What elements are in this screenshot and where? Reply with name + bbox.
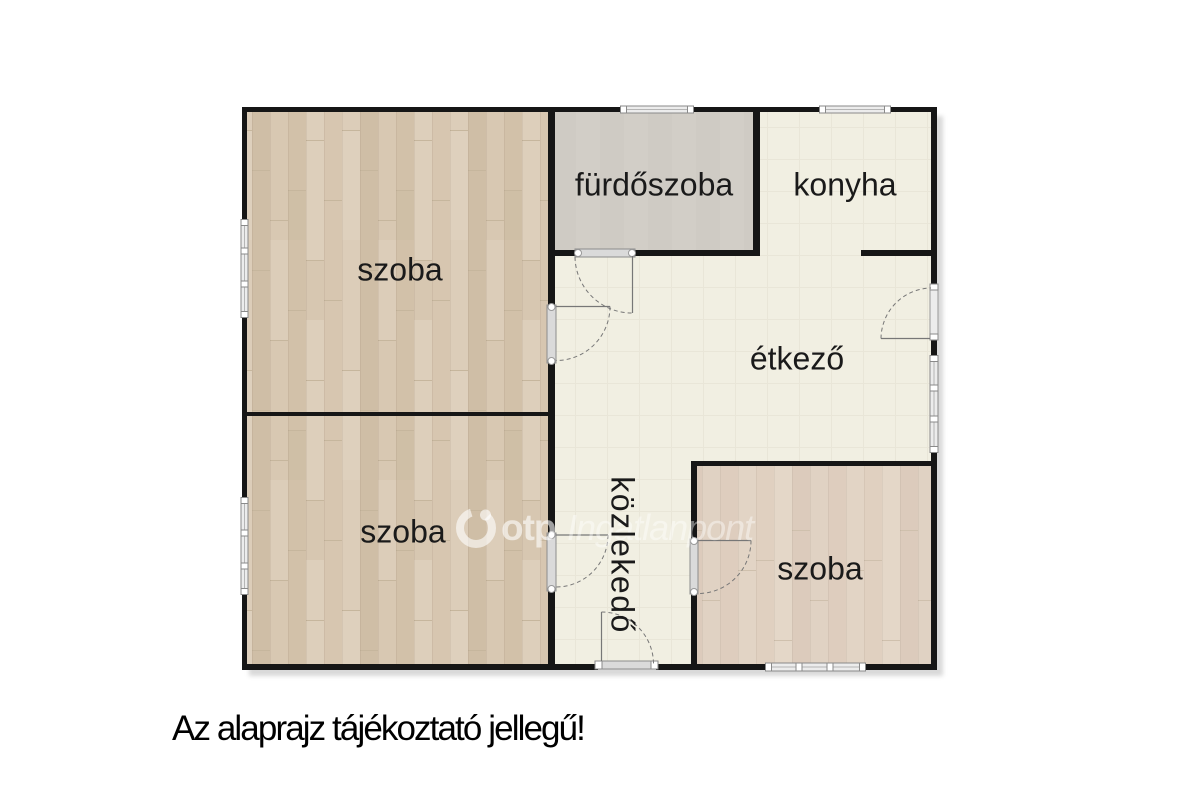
svg-text:Ingatlanpont: Ingatlanpont	[567, 507, 756, 548]
svg-text:otp: otp	[501, 507, 556, 548]
